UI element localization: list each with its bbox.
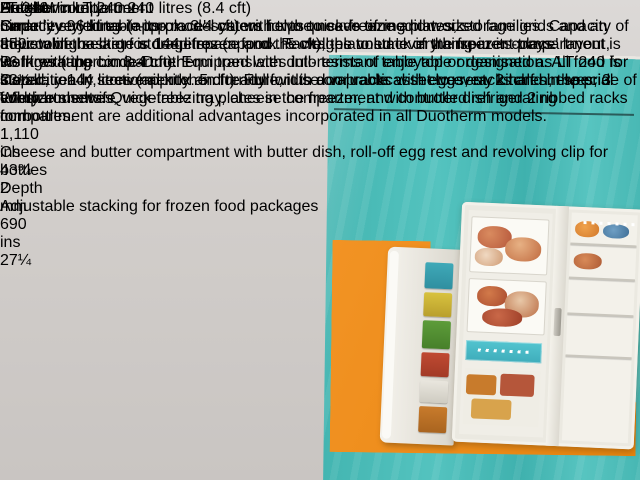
freezer-packages	[463, 368, 541, 427]
food-package	[500, 374, 535, 397]
fridge-shelf	[569, 276, 635, 281]
refrigerating-body: Capacity 144 litres (approx. 5 cft). Ful…	[0, 72, 640, 126]
fridge-cabinet	[452, 202, 640, 450]
freezer-tray	[469, 216, 549, 275]
food-item	[605, 256, 628, 271]
food-package	[471, 398, 512, 420]
food-package	[421, 352, 450, 377]
freezer-drawer-front	[465, 340, 542, 363]
brochure-photo: 2 Height mm 850 ins 33½ Width mm 1,110 i…	[0, 0, 640, 480]
caption-1-number: 1	[0, 126, 640, 144]
food-item	[482, 308, 523, 328]
caption-2-number: 2	[0, 180, 640, 198]
food-item	[477, 285, 508, 306]
fridge-door-open	[380, 247, 462, 446]
caption-2: 2 Adjustable stacking for frozen food pa…	[0, 180, 640, 216]
freezer-tray	[467, 278, 547, 335]
food-item	[505, 237, 542, 263]
food-package	[424, 262, 453, 289]
fridge-handle	[553, 308, 561, 336]
food-item	[474, 247, 503, 266]
watermark: AntiekWinkeltje.net	[0, 0, 136, 18]
food-package	[418, 406, 447, 433]
open-fridge-photo	[377, 187, 640, 458]
freezer-interior	[459, 210, 553, 437]
food-package	[423, 292, 452, 317]
food-item	[573, 253, 602, 270]
fridge-shelf	[570, 242, 636, 247]
food-package	[466, 374, 497, 395]
fridge-shelf	[567, 312, 633, 317]
refrigerating-heading: Refrigerating compartment	[0, 54, 640, 72]
dim-ins: ins 27¼	[0, 234, 46, 270]
caption-1-text: Cheese and butter compartment with butte…	[0, 144, 640, 180]
food-package	[419, 380, 448, 403]
food-package	[422, 320, 451, 349]
food-item	[603, 224, 630, 239]
fridge-shelf	[566, 354, 632, 359]
freezer-body: Capacity 96 litres (approx. 3.4 cft) wit…	[0, 18, 640, 54]
drawer-label	[478, 349, 530, 354]
refrigerator-interior	[562, 213, 638, 444]
spec-text: Freezer compartment Capacity 96 litres (…	[0, 0, 640, 126]
door-edge	[382, 251, 399, 439]
caption-2-text: Adjustable stacking for frozen food pack…	[0, 198, 640, 216]
door-racks	[418, 262, 455, 433]
spec-column: Freezer compartment Capacity 96 litres (…	[0, 0, 640, 216]
caption-1: 1 Cheese and butter compartment with but…	[0, 126, 640, 180]
